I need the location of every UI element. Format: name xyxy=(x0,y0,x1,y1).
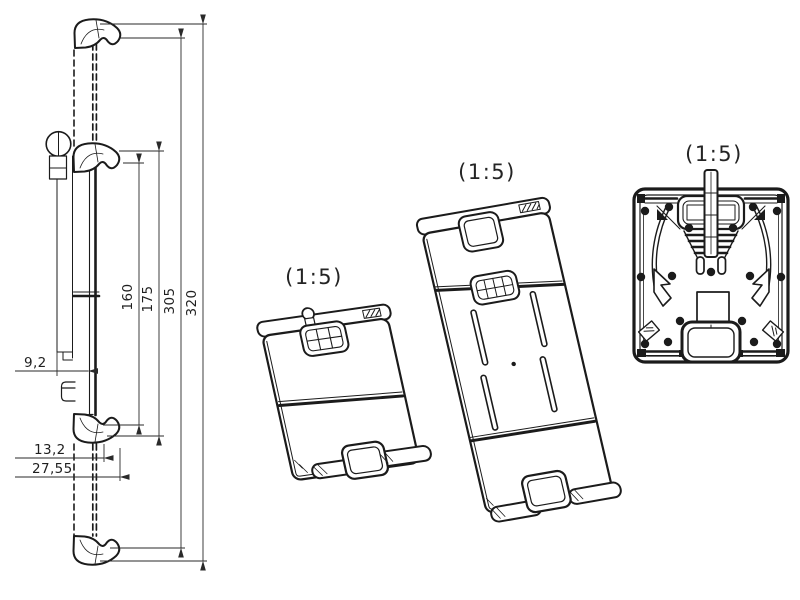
iso-front-view: (1:5) xyxy=(254,265,434,488)
rear-view: (1:5) xyxy=(634,142,788,362)
bottom-hook-extended xyxy=(74,536,120,565)
iso-extended-scale-label: (1:5) xyxy=(458,160,516,184)
dim-text-320: 320 xyxy=(184,290,200,317)
iso-extended-bottom-loop xyxy=(521,470,573,514)
side-latch-tab xyxy=(62,382,76,401)
iso-front-scale-label: (1:5) xyxy=(285,265,343,289)
dim-text-13-2: 13,2 xyxy=(34,442,66,458)
side-view: 160 175 305 320 9,2 13,2 27,55 xyxy=(15,19,207,564)
iso-front-clamp-housing xyxy=(299,320,350,357)
rear-scale-label: (1:5) xyxy=(685,142,743,166)
rear-bottom-loop xyxy=(682,322,740,362)
dim-text-9-2: 9,2 xyxy=(24,355,47,371)
technical-drawing-canvas: 160 175 305 320 9,2 13,2 27,55 (1:5) xyxy=(0,0,800,600)
dim-text-305: 305 xyxy=(162,288,178,315)
mid-hook xyxy=(74,143,120,172)
rail-step xyxy=(57,352,73,360)
rear-rack-spine xyxy=(705,170,718,257)
rear-left-prong xyxy=(697,257,705,274)
dim-text-175: 175 xyxy=(140,286,156,313)
iso-extended-body xyxy=(422,212,613,514)
iso-extended-handle-cutout xyxy=(457,211,505,253)
dimensions: 160 175 305 320 9,2 13,2 27,55 xyxy=(15,24,207,561)
iso-extended-view: (1:5) xyxy=(416,160,623,524)
bottom-hook xyxy=(74,414,120,443)
iso-front-bottom-loop xyxy=(341,441,390,480)
technical-drawing-page: 160 175 305 320 9,2 13,2 27,55 (1:5) xyxy=(0,0,800,600)
dim-text-160: 160 xyxy=(120,284,136,311)
dim-text-27-55: 27,55 xyxy=(32,461,73,477)
side-body xyxy=(46,132,99,415)
rear-right-prong xyxy=(718,257,726,274)
